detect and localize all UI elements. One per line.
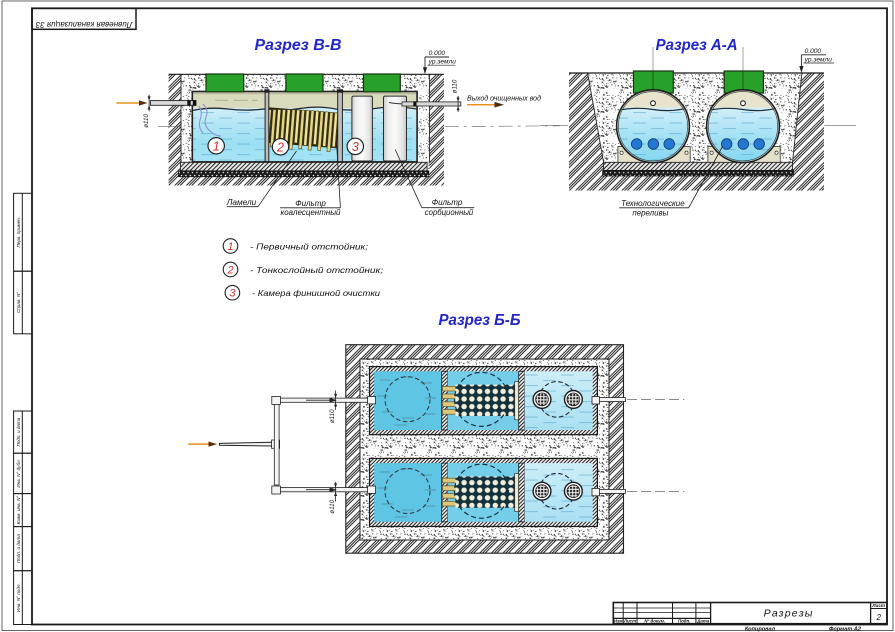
svg-text:- Первичный отстойник;: - Первичный отстойник; xyxy=(250,241,369,251)
svg-text:Справ. N°: Справ. N° xyxy=(16,292,21,313)
svg-text:3: 3 xyxy=(352,140,359,154)
svg-text:коалесцентный: коалесцентный xyxy=(281,208,342,217)
svg-text:Копировал: Копировал xyxy=(745,627,776,632)
svg-text:Ливневая канализация 33: Ливневая канализация 33 xyxy=(35,20,133,29)
svg-text:ø110: ø110 xyxy=(329,499,336,513)
svg-text:0.000: 0.000 xyxy=(805,48,822,55)
svg-text:3: 3 xyxy=(229,288,236,300)
svg-text:- Тонкослойный отстойник;: - Тонкослойный отстойник; xyxy=(250,265,384,275)
svg-text:Разрез А-А: Разрез А-А xyxy=(656,37,738,54)
svg-text:2: 2 xyxy=(226,265,233,277)
svg-text:Разрезы: Разрезы xyxy=(764,608,814,620)
svg-text:1: 1 xyxy=(213,139,220,153)
svg-text:- Камера финишной очистки: - Камера финишной очистки xyxy=(252,288,380,298)
svg-text:Лист: Лист xyxy=(871,603,885,608)
svg-text:ø110: ø110 xyxy=(329,409,336,423)
svg-text:Технологические: Технологические xyxy=(621,199,685,208)
svg-text:Ламели: Ламели xyxy=(226,198,257,207)
svg-text:Инв. N° дубл.: Инв. N° дубл. xyxy=(16,459,21,487)
svg-text:Перв. примен.: Перв. примен. xyxy=(16,217,21,248)
svg-text:ур.земли: ур.земли xyxy=(428,59,457,66)
svg-text:Подп. и дата: Подп. и дата xyxy=(16,417,21,446)
svg-text:Фильтр: Фильтр xyxy=(432,198,463,207)
svg-text:Взам. инв. N°: Взам. инв. N° xyxy=(16,496,21,525)
svg-text:ø110: ø110 xyxy=(143,114,150,128)
svg-text:N° докум.: N° докум. xyxy=(644,618,665,623)
svg-text:Подп.: Подп. xyxy=(678,618,690,623)
svg-text:Разрез В-В: Разрез В-В xyxy=(255,37,342,54)
svg-text:2: 2 xyxy=(276,140,284,154)
svg-text:Разрез Б-Б: Разрез Б-Б xyxy=(439,312,521,329)
svg-text:Изм: Изм xyxy=(614,618,623,623)
svg-text:Лист: Лист xyxy=(623,618,636,623)
svg-text:Выход очищенных вод: Выход очищенных вод xyxy=(467,94,541,103)
svg-text:Инв. N° подл.: Инв. N° подл. xyxy=(16,583,21,612)
svg-text:ур.земли: ур.земли xyxy=(804,56,833,63)
svg-text:сорбционный: сорбционный xyxy=(425,208,474,217)
svg-text:2: 2 xyxy=(875,613,881,622)
svg-text:Дата: Дата xyxy=(696,618,710,623)
svg-text:переливы: переливы xyxy=(632,209,668,218)
svg-text:ø110: ø110 xyxy=(451,79,458,93)
svg-text:1: 1 xyxy=(227,241,233,253)
svg-text:Формат А2: Формат А2 xyxy=(829,627,862,632)
svg-text:0.000: 0.000 xyxy=(429,50,446,57)
svg-text:Подп. и дата: Подп. и дата xyxy=(16,534,21,563)
svg-text:Фильтр: Фильтр xyxy=(295,199,326,208)
